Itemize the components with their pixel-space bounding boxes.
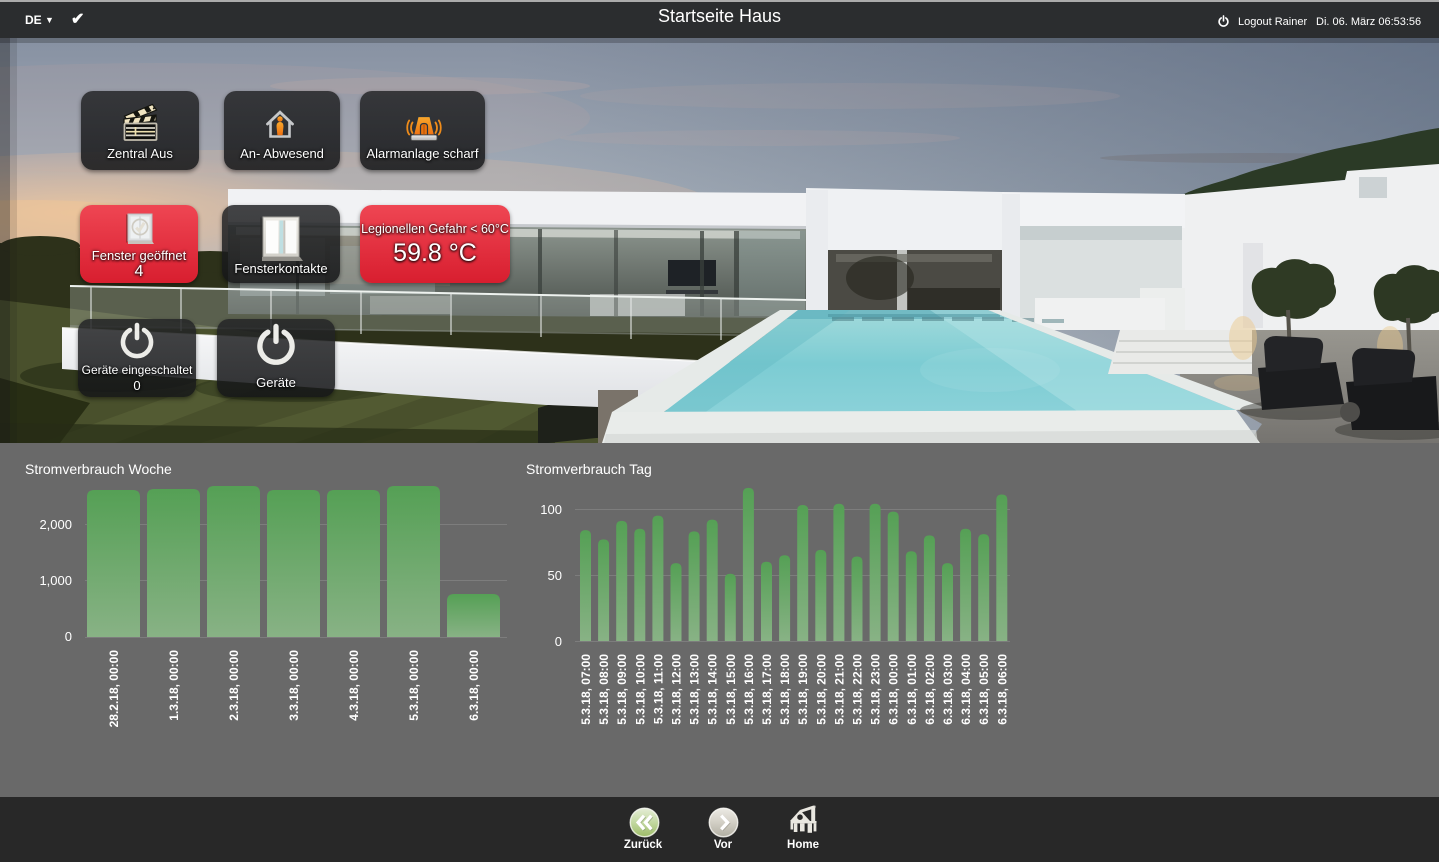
svg-text:5.3.18, 10:00: 5.3.18, 10:00 — [633, 654, 647, 725]
svg-text:5.3.18, 11:00: 5.3.18, 11:00 — [651, 654, 665, 724]
svg-text:5.3.18, 14:00: 5.3.18, 14:00 — [706, 654, 720, 725]
svg-text:50: 50 — [548, 568, 562, 583]
svg-text:5.3.18, 12:00: 5.3.18, 12:00 — [670, 654, 684, 725]
svg-text:5.3.18, 17:00: 5.3.18, 17:00 — [760, 654, 774, 725]
svg-text:6.3.18, 03:00: 6.3.18, 03:00 — [941, 654, 955, 725]
svg-text:6.3.18, 02:00: 6.3.18, 02:00 — [923, 654, 937, 725]
svg-text:4.3.18, 00:00: 4.3.18, 00:00 — [347, 650, 361, 721]
svg-text:5.3.18, 20:00: 5.3.18, 20:00 — [814, 654, 828, 725]
svg-text:5.3.18, 16:00: 5.3.18, 16:00 — [742, 654, 756, 725]
svg-text:5.3.18, 21:00: 5.3.18, 21:00 — [832, 654, 846, 725]
svg-text:6.3.18, 01:00: 6.3.18, 01:00 — [905, 654, 919, 725]
svg-text:6.3.18, 06:00: 6.3.18, 06:00 — [995, 654, 1009, 725]
svg-text:5.3.18, 22:00: 5.3.18, 22:00 — [851, 654, 865, 725]
svg-text:3.3.18, 00:00: 3.3.18, 00:00 — [287, 650, 301, 721]
svg-text:5.3.18, 18:00: 5.3.18, 18:00 — [778, 654, 792, 725]
svg-text:6.3.18, 04:00: 6.3.18, 04:00 — [959, 654, 973, 725]
svg-text:0: 0 — [65, 629, 72, 644]
svg-text:5.3.18, 08:00: 5.3.18, 08:00 — [597, 654, 611, 725]
svg-text:6.3.18, 00:00: 6.3.18, 00:00 — [887, 654, 901, 725]
svg-text:5.3.18, 07:00: 5.3.18, 07:00 — [579, 654, 593, 725]
svg-text:Stromverbrauch Woche: Stromverbrauch Woche — [25, 461, 172, 477]
svg-text:100: 100 — [540, 502, 562, 517]
svg-text:2.3.18, 00:00: 2.3.18, 00:00 — [227, 650, 241, 721]
svg-text:Stromverbrauch Tag: Stromverbrauch Tag — [526, 461, 652, 477]
svg-text:1,000: 1,000 — [39, 573, 72, 588]
svg-text:5.3.18, 15:00: 5.3.18, 15:00 — [724, 654, 738, 725]
svg-text:5.3.18, 09:00: 5.3.18, 09:00 — [615, 654, 629, 725]
svg-text:28.2.18, 00:00: 28.2.18, 00:00 — [107, 650, 121, 728]
svg-text:5.3.18, 23:00: 5.3.18, 23:00 — [869, 654, 883, 725]
svg-text:2,000: 2,000 — [39, 517, 72, 532]
svg-text:5.3.18, 00:00: 5.3.18, 00:00 — [407, 650, 421, 721]
svg-text:5.3.18, 13:00: 5.3.18, 13:00 — [688, 654, 702, 725]
svg-text:1.3.18, 00:00: 1.3.18, 00:00 — [167, 650, 181, 721]
svg-text:5.3.18, 19:00: 5.3.18, 19:00 — [796, 654, 810, 725]
svg-text:6.3.18, 00:00: 6.3.18, 00:00 — [467, 650, 481, 721]
svg-text:0: 0 — [555, 634, 562, 649]
svg-text:6.3.18, 05:00: 6.3.18, 05:00 — [977, 654, 991, 725]
